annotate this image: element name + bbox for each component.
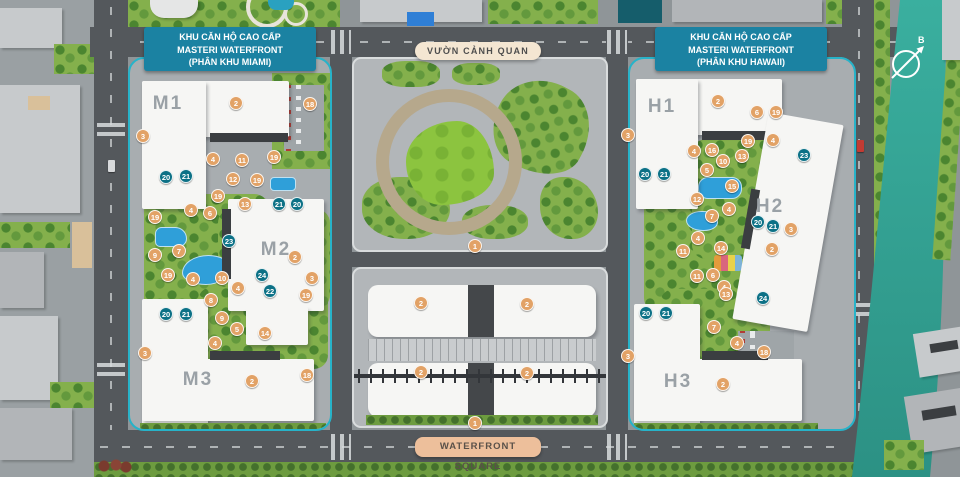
building-M2-roof [222, 209, 231, 279]
neighbour-building [150, 0, 198, 18]
crosswalk [97, 120, 125, 136]
square-hedge [366, 415, 598, 425]
building-M3-roof [210, 351, 280, 360]
road-garden-south [340, 252, 620, 267]
neighbour-roof [28, 96, 50, 110]
banner-miami-line1: KHU CĂN HỘ CAO CẤP [144, 31, 316, 44]
miami-parking [284, 85, 324, 151]
crosswalk [331, 434, 351, 460]
hawaii-pool [686, 211, 718, 231]
road-central-east [606, 27, 628, 437]
neighbour-green [0, 222, 70, 248]
neighbour-pool [407, 12, 434, 26]
neighbour-building [0, 252, 44, 308]
neighbour-building [942, 0, 960, 60]
compass-icon: B [880, 34, 938, 92]
building-H3-roof [702, 351, 768, 360]
neighbour-left [0, 0, 96, 477]
square-building-gap [468, 285, 494, 337]
neighbour-building [0, 8, 62, 48]
banner-hawaii: KHU CĂN HỘ CAO CẤP MASTERI WATERFRONT (P… [655, 27, 827, 71]
neighbour-roof [72, 222, 92, 268]
hawaii-playground [714, 255, 742, 271]
neighbour-green [884, 440, 924, 470]
road-central-west [330, 27, 352, 437]
crosswalk [97, 360, 125, 376]
banner-miami-line3: (PHÂN KHU MIAMI) [144, 56, 316, 69]
red-bush [98, 458, 132, 474]
square-canopy-line [354, 374, 608, 378]
block-hawaii [628, 57, 856, 431]
garden-central-lawn [406, 121, 494, 205]
banner-hawaii-line2: MASTERI WATERFRONT [655, 44, 827, 57]
building-H1-tower [636, 79, 698, 209]
road-left-centerline [110, 0, 112, 477]
neighbour-building [0, 408, 72, 460]
banner-miami: KHU CĂN HỘ CAO CẤP MASTERI WATERFRONT (P… [144, 27, 316, 71]
banner-hawaii-line1: KHU CĂN HỘ CAO CẤP [655, 31, 827, 44]
hawaii-pool [698, 177, 742, 199]
miami-pool-small [270, 177, 296, 191]
banner-miami-line2: MASTERI WATERFRONT [144, 44, 316, 57]
banner-square: WATERFRONT SQUARE [415, 437, 541, 457]
garden-lawn [382, 61, 440, 87]
square-panel [352, 267, 608, 428]
neighbour-building [672, 0, 822, 22]
building-M2 [228, 199, 324, 311]
garden-lawn [452, 63, 500, 85]
banner-hawaii-line3: (PHÂN KHU HAWAII) [655, 56, 827, 69]
garden-panel [352, 57, 608, 252]
building-M3-bar [142, 359, 314, 421]
masterplan-map: KHU CĂN HỘ CAO CẤP MASTERI WATERFRONT (P… [0, 0, 960, 477]
park-pool [268, 0, 294, 10]
banner-garden: VƯỜN CẢNH QUAN [415, 42, 541, 60]
compass-north-label: B [918, 35, 925, 45]
car [108, 160, 115, 172]
building-M1-roof [210, 133, 288, 142]
building-M2-wing [246, 307, 308, 345]
neighbour-green [488, 0, 598, 24]
neighbour-green [50, 382, 96, 408]
crosswalk [607, 434, 627, 460]
neighbour-building-dark [618, 0, 662, 23]
building-H3-bar [634, 359, 802, 421]
square-connector [368, 339, 596, 361]
crosswalk [607, 30, 627, 54]
garden-lawn [540, 177, 598, 239]
building-M1-tower [142, 81, 206, 209]
crosswalk [331, 30, 351, 54]
miami-pool [155, 227, 187, 247]
hawaii-hedge-bottom [634, 423, 818, 431]
miami-hedge-bottom [140, 423, 326, 431]
block-miami [128, 57, 332, 431]
